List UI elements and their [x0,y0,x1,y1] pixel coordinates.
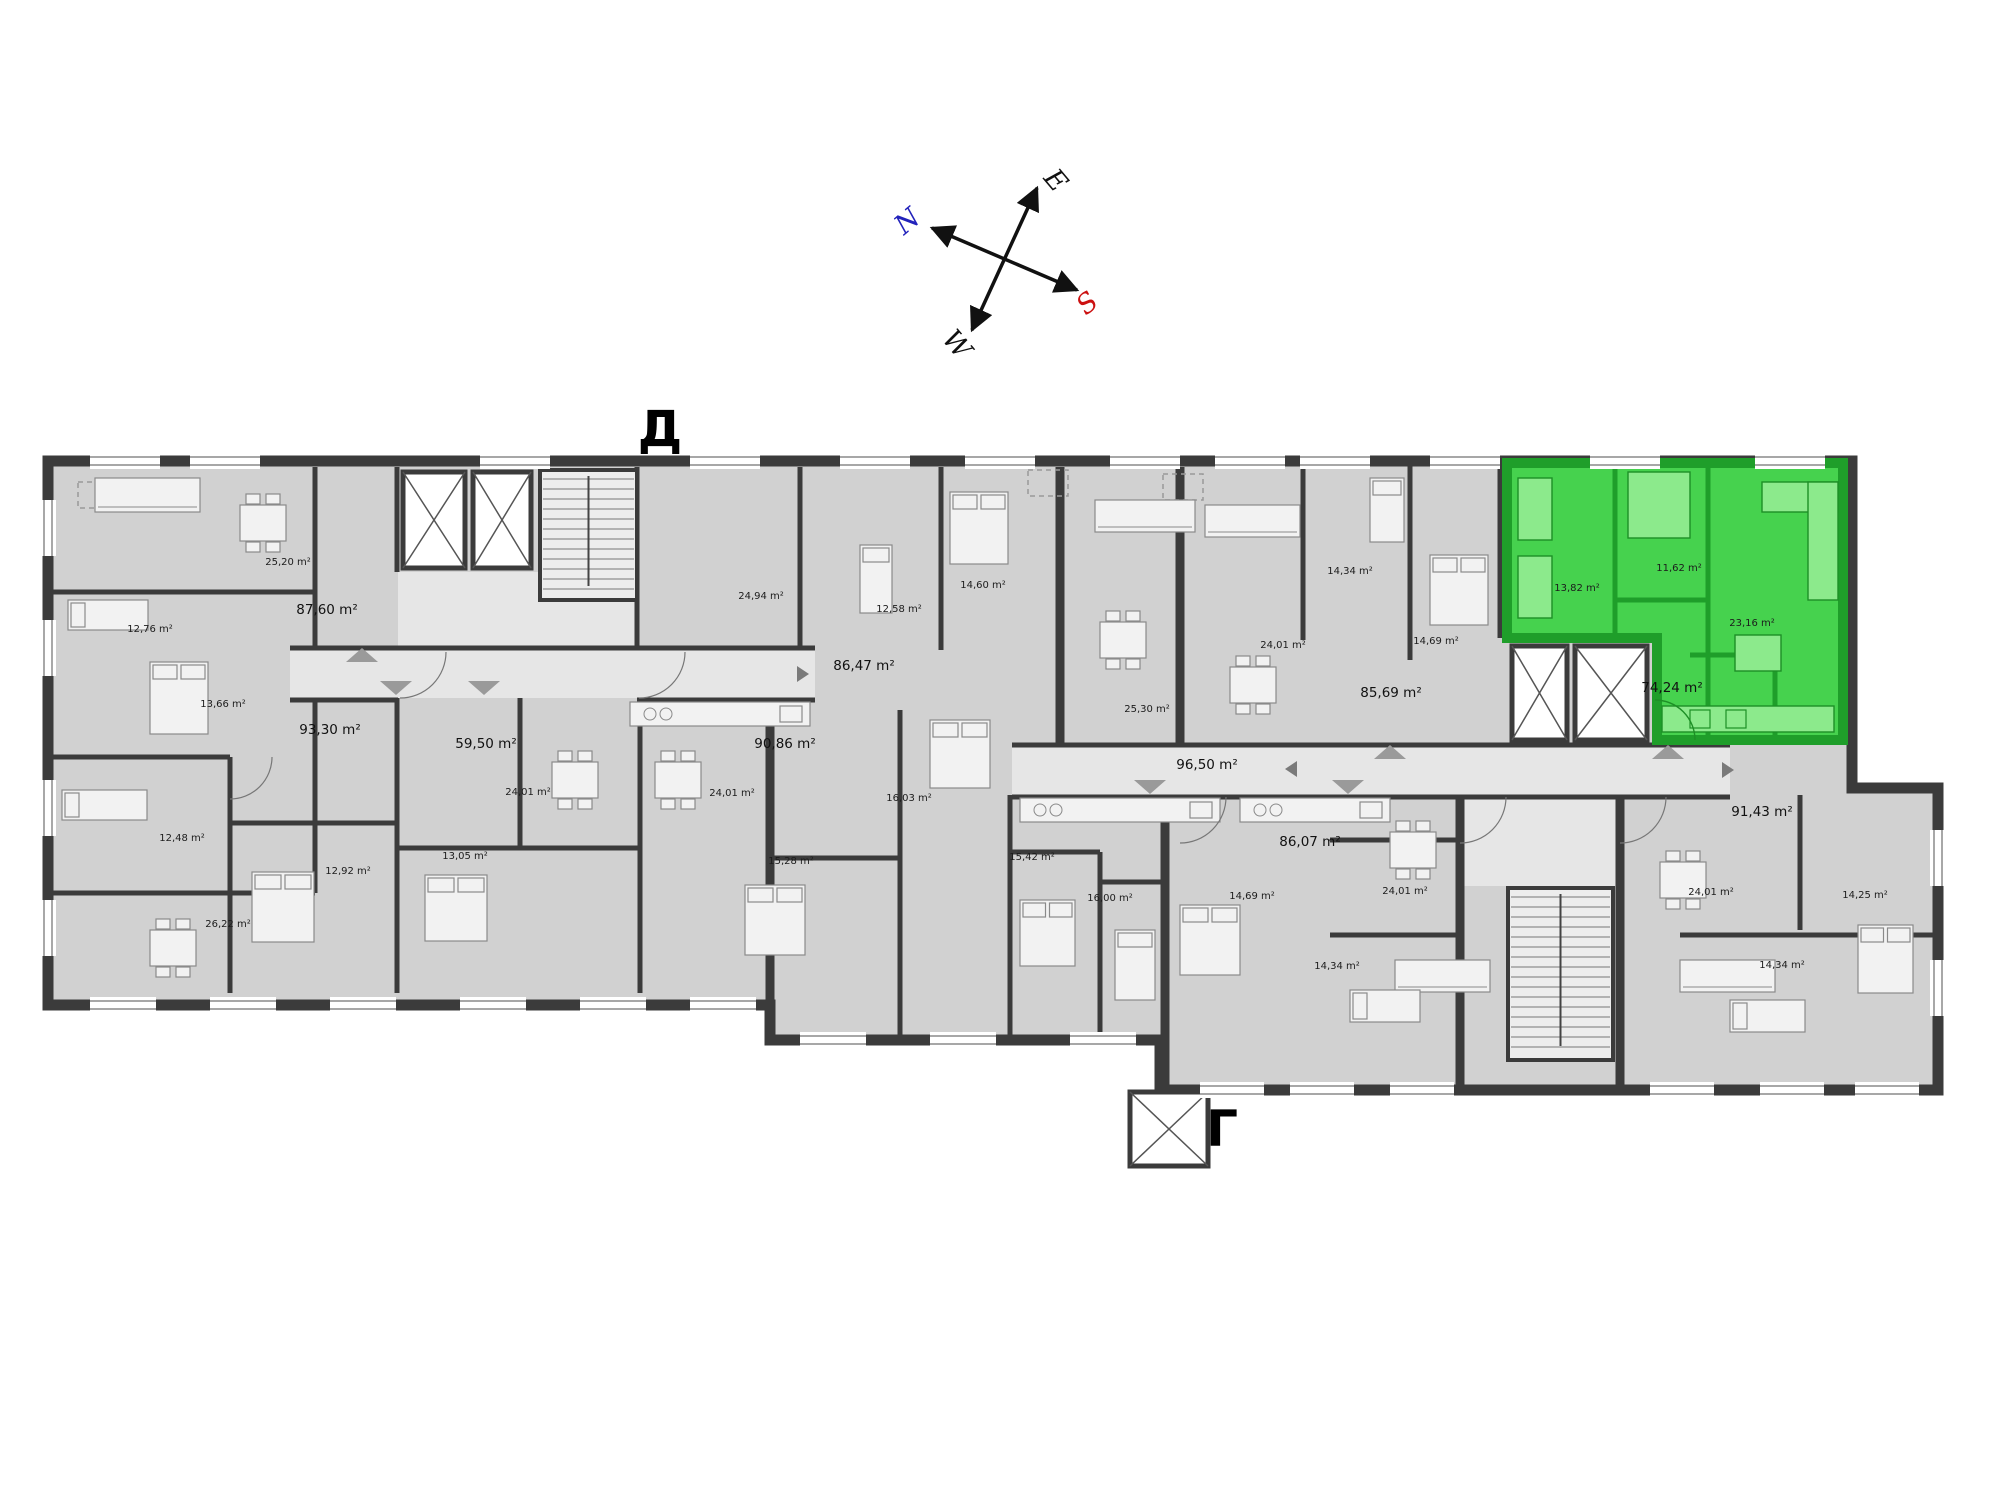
chair [266,542,280,552]
pillow [1373,481,1401,495]
window [90,997,156,1013]
chair [1416,821,1430,831]
window [1290,1082,1354,1098]
area-label: 26,22 m² [205,919,251,930]
area-label: 14,25 m² [1842,890,1888,901]
pillow [953,495,977,509]
pillow [428,878,454,892]
pillow [981,495,1005,509]
window [1855,1082,1919,1098]
area-label-highlighted-unit: 74,24 m² [1641,680,1703,696]
green-furniture [1628,472,1690,538]
area-label: 93,30 m² [299,722,361,738]
area-label: 24,01 m² [709,788,755,799]
area-label: 25,30 m² [1124,704,1170,715]
floor-plan-page: 25,20 m²87,60 m²12,76 m²13,66 m²93,30 m²… [0,0,2000,1500]
pillow [1733,1003,1747,1029]
area-label: 86,47 m² [833,658,895,674]
window [480,453,550,469]
dining-table [1100,622,1146,658]
pillow [1183,908,1208,922]
compass-letter-E: E [1037,162,1074,198]
chair [1126,659,1140,669]
area-label: 14,34 m² [1759,960,1805,971]
lobby-right [1462,797,1617,886]
area-label: 12,76 m² [127,624,173,635]
area-label: 13,05 m² [442,851,488,862]
window [1110,453,1180,469]
window [460,997,526,1013]
area-label: 14,34 m² [1314,961,1360,972]
window [1760,1082,1824,1098]
chair [176,919,190,929]
window [1930,960,1946,1016]
chair [661,799,675,809]
chair [1236,656,1250,666]
compass-letter-W: W [936,324,979,367]
building-letter-Д: Д [638,400,683,458]
compass-axis-ew [972,188,1037,330]
window [690,453,760,469]
chair [1666,899,1680,909]
chair [1236,704,1250,714]
area-label: 14,69 m² [1229,891,1275,902]
area-label: 15,42 m² [1009,852,1055,863]
chair [1126,611,1140,621]
window [1930,830,1946,886]
pillow [1353,993,1367,1019]
area-label: 12,58 m² [876,604,922,615]
pillow [1433,558,1457,572]
compass-letter-N: N [888,201,928,241]
pillow [933,723,958,737]
window [690,997,756,1013]
pillow [255,875,281,889]
sink [1360,802,1382,818]
window [580,997,646,1013]
window [1590,453,1660,469]
area-label: 24,01 m² [505,787,551,798]
dining-table [655,762,701,798]
pillow [1118,933,1152,947]
chair [1396,869,1410,879]
area-label: 12,48 m² [159,833,205,844]
pillow [777,888,802,902]
pillow [153,665,177,679]
chair [246,494,260,504]
chair [246,542,260,552]
area-label: 86,07 m² [1279,834,1341,850]
chair [1106,659,1120,669]
window [90,453,160,469]
area-label: 96,50 m² [1176,757,1238,773]
window [1200,1082,1264,1098]
window [40,500,56,556]
area-label: 87,60 m² [296,602,358,618]
window [1650,1082,1714,1098]
window [965,453,1035,469]
window [190,453,260,469]
area-label-highlighted-unit: 13,82 m² [1554,583,1600,594]
area-label: 24,94 m² [738,591,784,602]
window [330,997,396,1013]
area-label: 15,28 m² [768,856,814,867]
window [1070,1032,1136,1048]
floor-plan-svg: 25,20 m²87,60 m²12,76 m²13,66 m²93,30 m²… [0,0,2000,1500]
dining-table [240,505,286,541]
chair [578,751,592,761]
green-furniture [1662,706,1834,732]
chair [661,751,675,761]
pillow [962,723,987,737]
chair [156,967,170,977]
area-label: 24,01 m² [1260,640,1306,651]
pillow [1212,908,1237,922]
area-label: 90,86 m² [754,736,816,752]
chair [1666,851,1680,861]
chair [1686,851,1700,861]
dining-table [150,930,196,966]
chair [558,799,572,809]
green-furniture [1735,635,1781,671]
green-furniture [1518,556,1552,618]
window [800,1032,866,1048]
chair [558,751,572,761]
chair [176,967,190,977]
chair [1106,611,1120,621]
chair [266,494,280,504]
window [40,620,56,676]
window [40,780,56,836]
area-label: 14,69 m² [1413,636,1459,647]
sink [1190,802,1212,818]
area-label: 16,03 m² [886,793,932,804]
area-label-highlighted-unit: 23,16 m² [1729,618,1775,629]
window [1390,1082,1454,1098]
sink [780,706,802,722]
building-letter-Г: Г [1206,1100,1238,1158]
window [840,453,910,469]
pillow [1461,558,1485,572]
pillow [748,888,773,902]
pillow [71,603,85,627]
area-label: 24,01 m² [1382,886,1428,897]
pillow [181,665,205,679]
window [1215,453,1285,469]
area-label: 13,66 m² [200,699,246,710]
area-label: 91,43 m² [1731,804,1793,820]
pillow [1050,903,1073,917]
pillow [285,875,311,889]
area-label: 25,20 m² [265,557,311,568]
compass-rose: NESW [888,162,1105,367]
chair [156,919,170,929]
pillow [1861,928,1884,942]
window [210,997,276,1013]
green-furniture [1808,482,1838,600]
pillow [1023,903,1046,917]
chair [1256,704,1270,714]
chair [1256,656,1270,666]
window [40,900,56,956]
chair [1416,869,1430,879]
window [930,1032,996,1048]
dining-table [1230,667,1276,703]
chair [681,751,695,761]
area-label: 16,00 m² [1087,893,1133,904]
pillow [458,878,484,892]
dining-table [1390,832,1436,868]
area-label: 24,01 m² [1688,887,1734,898]
area-label-highlighted-unit: 11,62 m² [1656,563,1702,574]
area-label: 14,34 m² [1327,566,1373,577]
dining-table [552,762,598,798]
corridor-right [1012,747,1730,795]
window [1755,453,1825,469]
green-furniture [1518,478,1552,540]
pillow [863,548,889,562]
pillow [1888,928,1911,942]
chair [1686,899,1700,909]
chair [681,799,695,809]
area-label: 85,69 m² [1360,685,1422,701]
area-label: 14,60 m² [960,580,1006,591]
window [1300,453,1370,469]
window [1430,453,1500,469]
area-label: 59,50 m² [455,736,517,752]
chair [1396,821,1410,831]
area-label: 12,92 m² [325,866,371,877]
chair [578,799,592,809]
pillow [65,793,79,817]
